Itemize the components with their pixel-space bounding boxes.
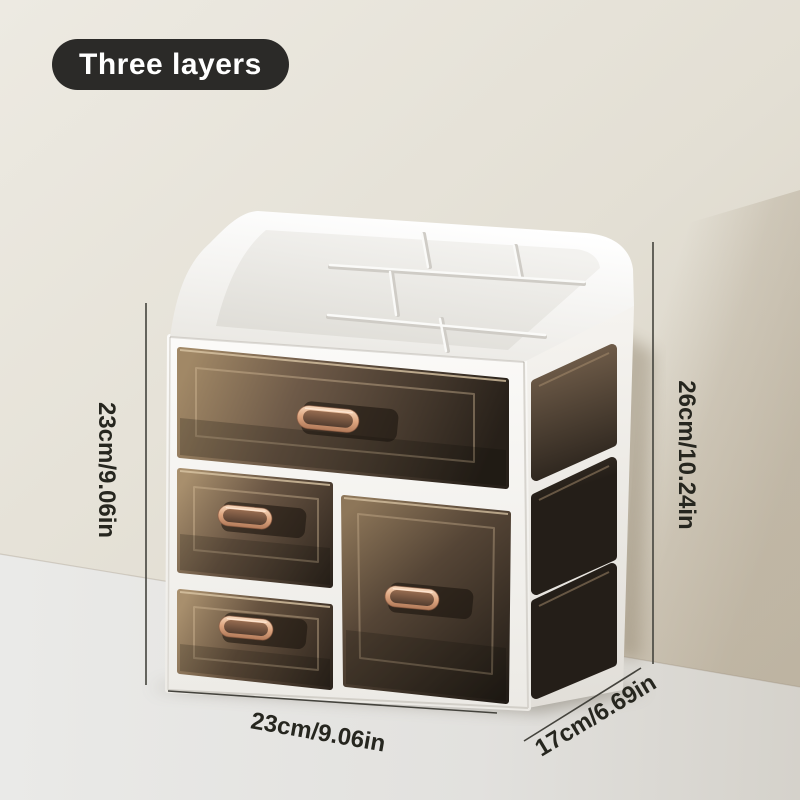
dimension-label-left-height: 23cm/9.06in [92,360,120,580]
dimension-label-right-height: 26cm/10.24in [672,345,700,565]
product-photo: Three layers 23cm/9.06in 26cm/10.24in 23… [0,0,800,800]
three-layers-badge: Three layers [52,39,289,90]
organizer [168,211,634,708]
